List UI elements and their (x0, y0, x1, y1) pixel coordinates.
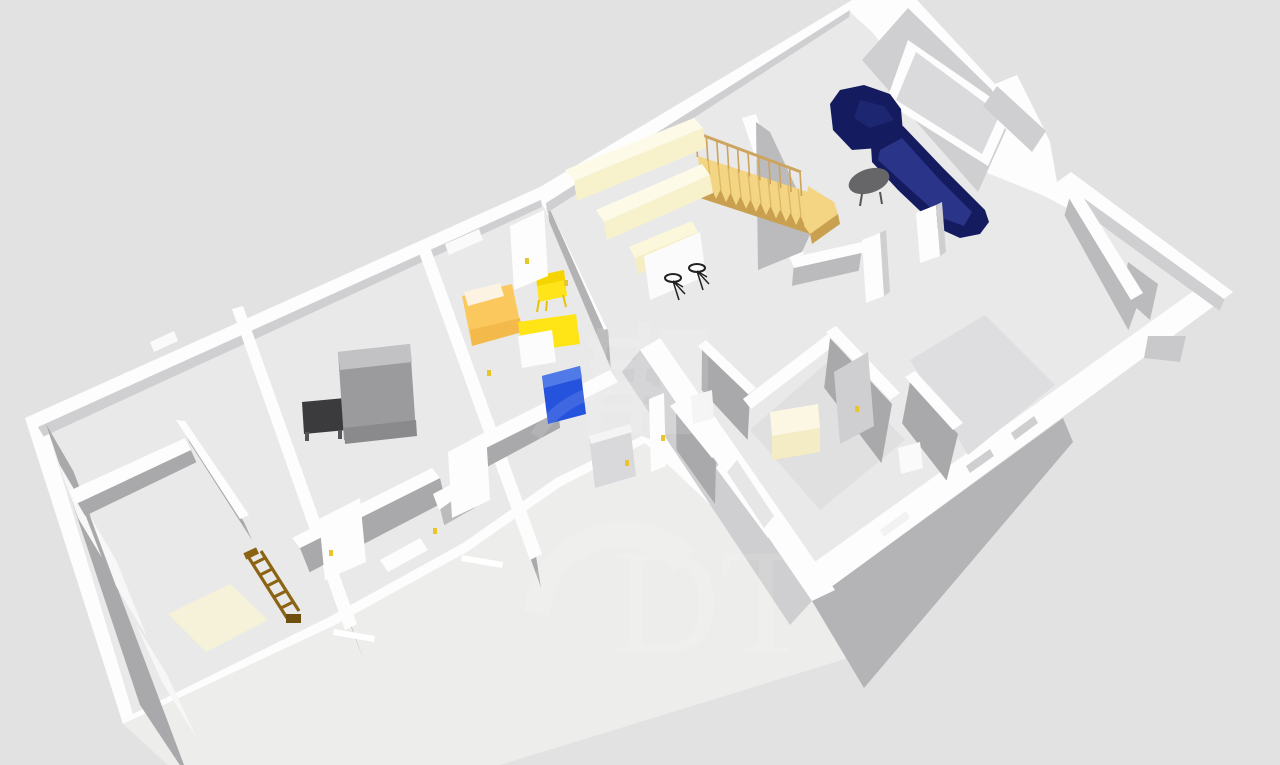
svg-text:DT: DT (612, 519, 812, 685)
